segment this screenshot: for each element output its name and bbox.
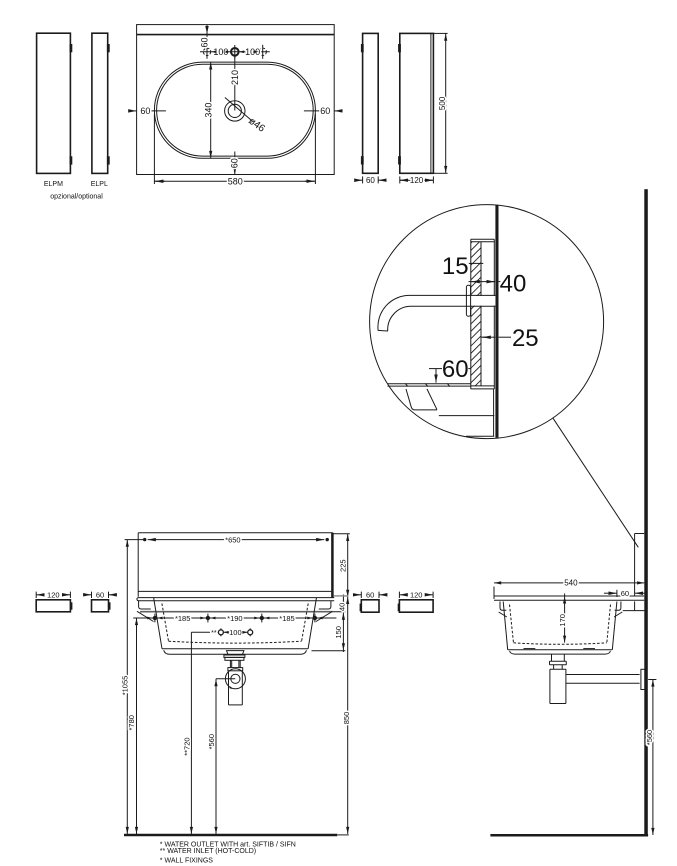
svg-text:500: 500 <box>438 96 447 110</box>
svg-text:850: 850 <box>342 712 351 725</box>
svg-text:60: 60 <box>199 37 209 47</box>
svg-text:60: 60 <box>140 106 150 116</box>
svg-text:25: 25 <box>512 325 539 352</box>
svg-text:210: 210 <box>230 70 240 85</box>
svg-text:*190: *190 <box>227 614 242 623</box>
svg-text:580: 580 <box>228 176 243 186</box>
svg-text:540: 540 <box>564 579 578 588</box>
svg-text:*185: *185 <box>279 614 294 623</box>
svg-text:15: 15 <box>442 253 469 280</box>
svg-text:opzional/optional: opzional/optional <box>50 193 103 200</box>
svg-text:ELPM: ELPM <box>44 181 63 188</box>
svg-text:120: 120 <box>47 591 60 600</box>
svg-text:**720: **720 <box>183 737 192 755</box>
svg-text:60: 60 <box>230 158 240 168</box>
svg-text:40: 40 <box>338 603 347 611</box>
svg-text:*650: *650 <box>225 535 240 544</box>
svg-text:** WATER INLET (HOT-COLD): ** WATER INLET (HOT-COLD) <box>160 848 256 855</box>
svg-text:* WALL FIXINGS: * WALL FIXINGS <box>160 858 213 865</box>
svg-text:*560: *560 <box>207 734 216 749</box>
svg-text:340: 340 <box>203 103 213 118</box>
svg-text:150: 150 <box>334 626 343 639</box>
svg-text:*780: *780 <box>127 715 136 730</box>
svg-text:120: 120 <box>410 176 424 185</box>
svg-text:60: 60 <box>621 589 629 598</box>
svg-text:100: 100 <box>229 628 242 637</box>
svg-text:60: 60 <box>96 591 104 600</box>
svg-text:60: 60 <box>442 356 469 383</box>
svg-text:*: * <box>229 687 232 694</box>
svg-text:60: 60 <box>366 176 375 185</box>
svg-text:170: 170 <box>558 614 567 627</box>
svg-text:225: 225 <box>339 559 348 572</box>
svg-text:*560: *560 <box>645 730 654 745</box>
svg-text:120: 120 <box>410 591 423 600</box>
svg-text:60: 60 <box>320 106 330 116</box>
svg-text:*185: *185 <box>175 614 190 623</box>
svg-text:ELPL: ELPL <box>91 181 108 188</box>
svg-text:*1055: *1055 <box>121 676 130 696</box>
svg-text:**: ** <box>211 630 217 637</box>
svg-text:60: 60 <box>366 591 374 600</box>
svg-text:40: 40 <box>500 271 527 298</box>
